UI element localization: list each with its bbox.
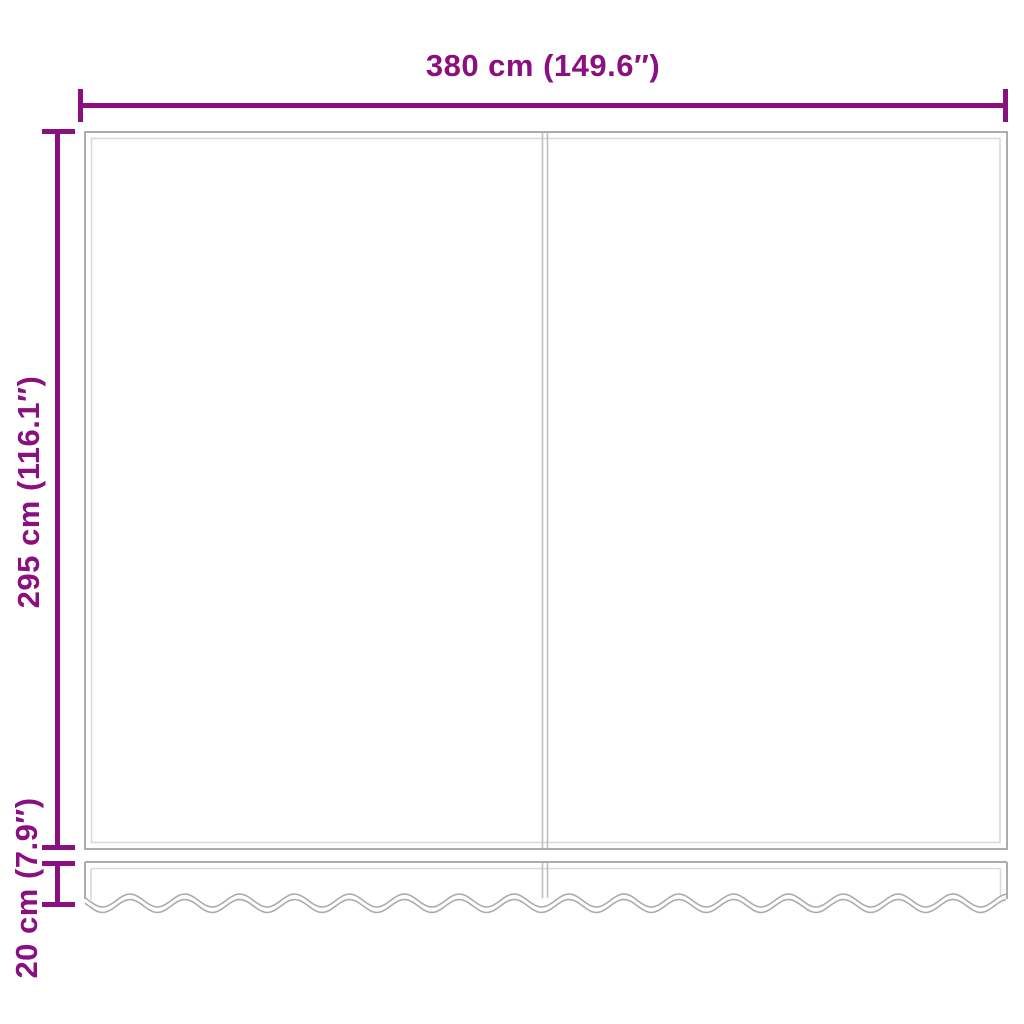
width-dimension-label: 380 cm (149.6″) — [426, 48, 660, 84]
valance-wave-outer — [85, 894, 1006, 907]
width-dimension-tick-right — [1003, 89, 1008, 122]
valance-dimension-tick-bottom — [42, 902, 75, 907]
valance-outer-outline — [85, 862, 1007, 899]
fabric-outer-outline — [85, 132, 1007, 849]
valance-dimension-tick-top — [42, 861, 75, 866]
fabric-inner-outline — [92, 139, 1001, 843]
valance-dimension-line — [55, 864, 60, 906]
height-dimension-tick-top — [42, 129, 75, 134]
height-dimension-line — [55, 131, 60, 848]
width-dimension-line — [80, 103, 1006, 108]
width-dimension-tick-left — [78, 89, 83, 122]
diagram-canvas: 380 cm (149.6″) 295 cm (116.1″) 20 cm (7… — [0, 0, 1024, 1024]
valance-inner-outline — [91, 869, 1001, 901]
height-dimension-label: 295 cm (116.1″) — [11, 376, 47, 609]
valance-dimension-label: 20 cm (7.9″) — [9, 797, 45, 978]
awning-fabric-drawing — [0, 0, 1024, 1024]
height-dimension-tick-bottom — [42, 845, 75, 850]
